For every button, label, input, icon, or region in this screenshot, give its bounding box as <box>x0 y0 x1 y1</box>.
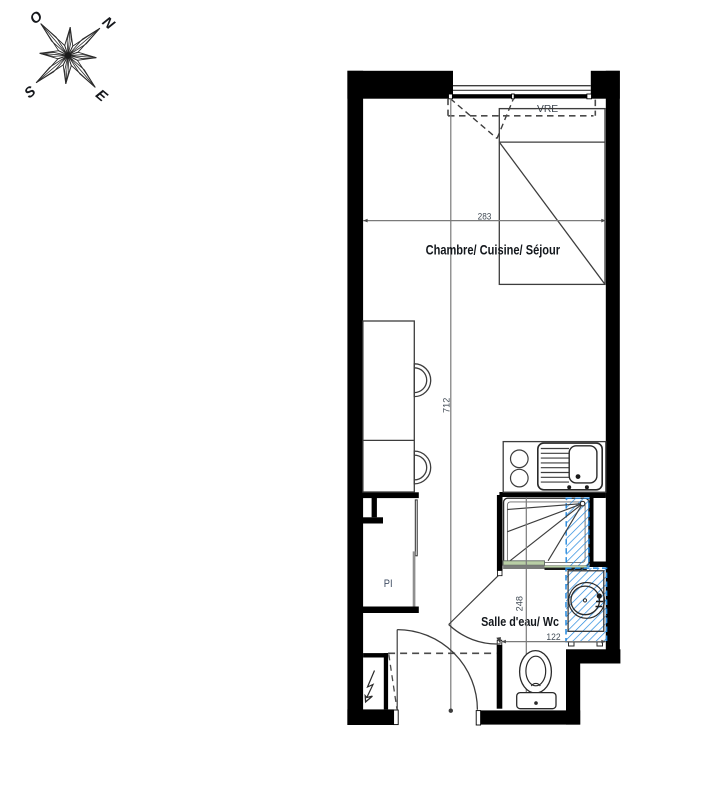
svg-text:Salle d'eau/ Wc: Salle d'eau/ Wc <box>481 614 559 629</box>
svg-text:VRE: VRE <box>537 104 558 115</box>
svg-text:S: S <box>22 83 40 102</box>
svg-text:PI: PI <box>384 578 393 590</box>
svg-text:O: O <box>27 8 46 28</box>
svg-text:E: E <box>92 87 111 106</box>
svg-text:N: N <box>99 14 118 33</box>
svg-text:248: 248 <box>515 596 525 611</box>
svg-text:283: 283 <box>478 211 492 221</box>
svg-text:122: 122 <box>546 632 560 642</box>
svg-text:Chambre/ Cuisine/ Séjour: Chambre/ Cuisine/ Séjour <box>426 242 561 257</box>
svg-text:712: 712 <box>441 398 451 413</box>
